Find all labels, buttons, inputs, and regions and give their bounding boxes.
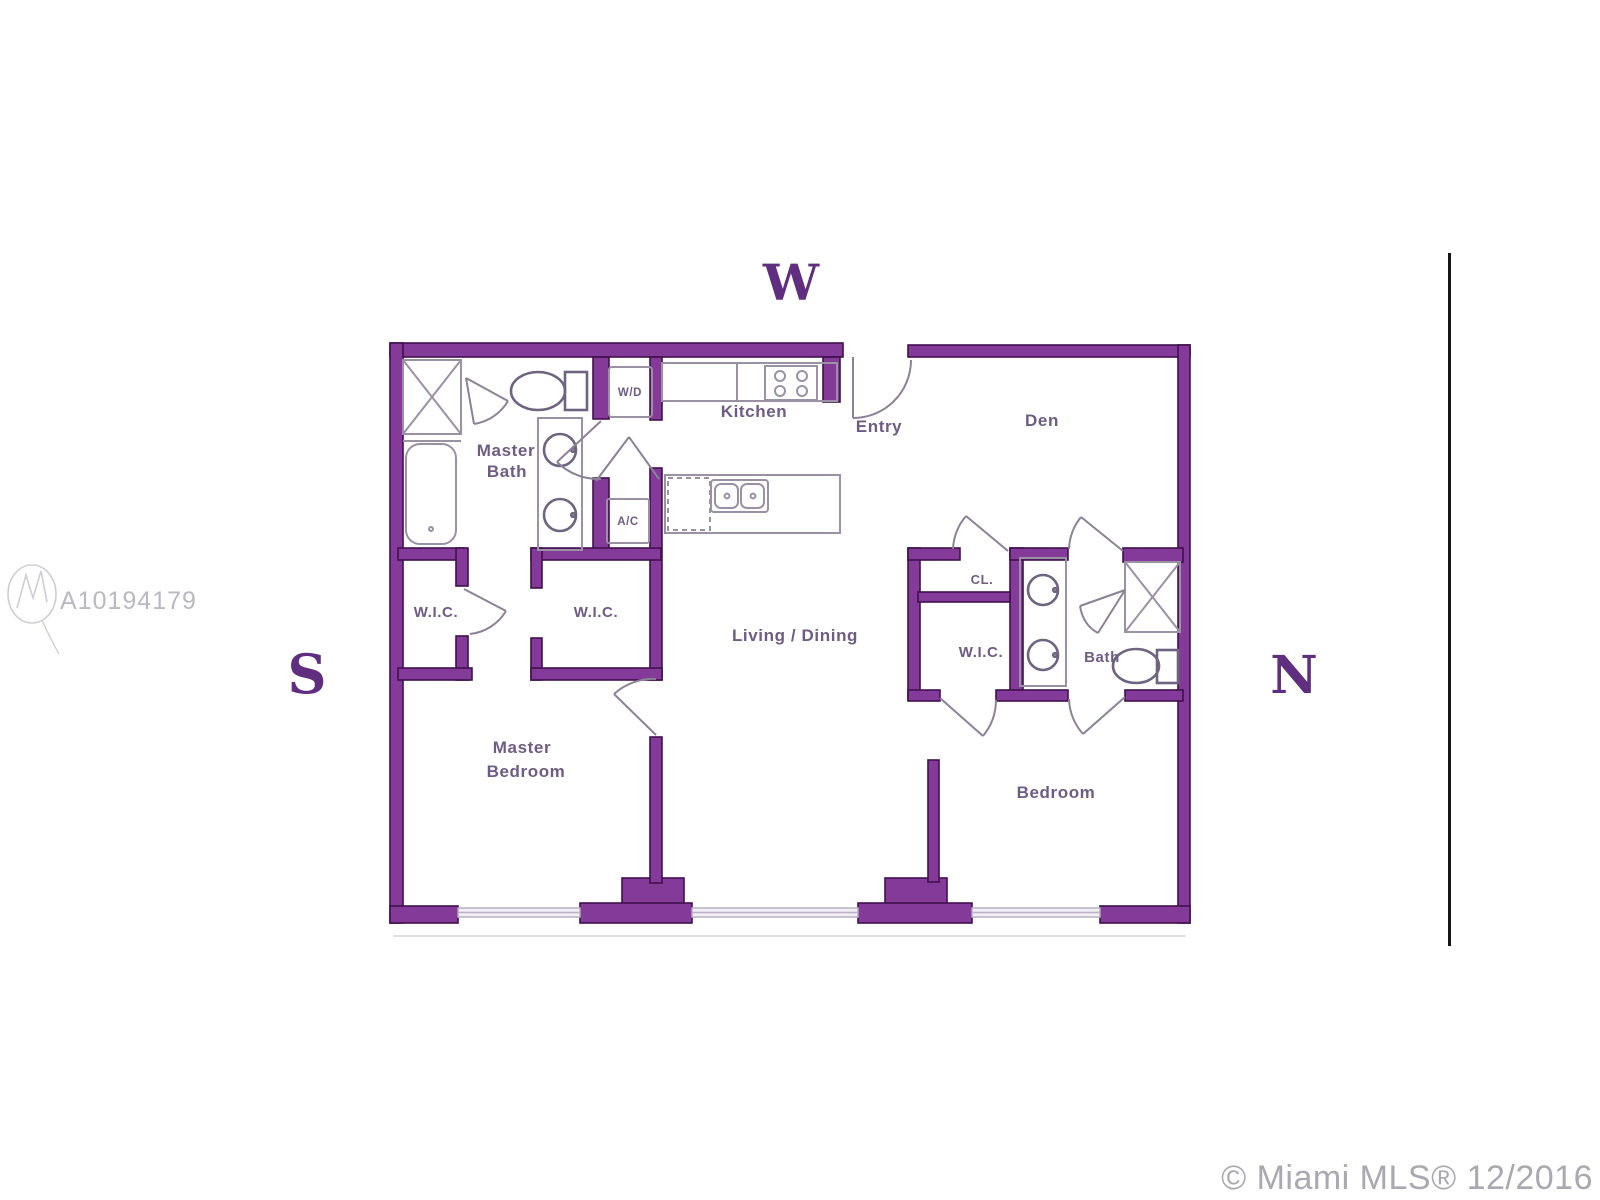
- label-wd: W/D: [618, 387, 642, 399]
- wall-block-top-c: [1123, 548, 1183, 562]
- shower-second: [1125, 562, 1180, 632]
- sink-second-double-icon: [1028, 575, 1058, 670]
- door-cl-closet: [953, 516, 1008, 551]
- label-wic-right: W.I.C.: [959, 644, 1003, 661]
- wall-wicmid-stub-top: [531, 548, 542, 588]
- wall-bottom-right-corner: [1100, 906, 1190, 923]
- kitchen-sink-icon: [711, 480, 768, 512]
- wall-right: [1178, 345, 1190, 923]
- label-den: Den: [1025, 411, 1059, 430]
- label-master-bath-2: Bath: [487, 462, 527, 481]
- wall-bottom-left-corner: [390, 906, 458, 923]
- wall-top-right: [908, 345, 1190, 357]
- vertical-divider-line: [1448, 253, 1451, 946]
- wall-bath-bottom-a: [398, 548, 464, 560]
- label-cl: CL.: [971, 572, 994, 587]
- door-shower-master: [466, 378, 508, 424]
- toilet-master-icon: [511, 372, 587, 410]
- wall-left: [390, 343, 403, 923]
- mls-logo-icon: [8, 565, 59, 654]
- floorplan-page: Master Bath W/D A/C Kitchen Entry Den W.…: [0, 0, 1600, 1200]
- bathtub-icon: [406, 444, 456, 544]
- door-wic-right: [940, 698, 996, 736]
- wall-block-bottom-c: [1125, 690, 1183, 701]
- wall-bath-wd-upper: [593, 357, 609, 419]
- wall-ac-living: [650, 468, 662, 680]
- label-entry: Entry: [856, 417, 902, 436]
- label-master-bedroom-2: Bedroom: [487, 762, 566, 781]
- label-master-bath-1: Master: [477, 441, 535, 460]
- label-wic-left: W.I.C.: [414, 604, 458, 621]
- wall-wicmid-bottom: [531, 668, 662, 680]
- label-bedroom: Bedroom: [1017, 783, 1096, 802]
- label-bath: Bath: [1084, 649, 1120, 666]
- kitchen-counter: [662, 363, 837, 401]
- door-bath-lower: [1069, 697, 1125, 734]
- watermark-id: A10194179: [60, 587, 197, 615]
- door-bath-upper: [1069, 517, 1123, 551]
- wall-masterbedroom-living: [650, 737, 662, 883]
- door-shower-second: [1080, 590, 1125, 633]
- wall-block-left: [908, 548, 920, 700]
- toilet-second-icon: [1113, 649, 1178, 683]
- label-kitchen: Kitchen: [721, 402, 788, 421]
- copyright-text: © Miami MLS® 12/2016: [1221, 1159, 1593, 1197]
- label-master-bedroom-1: Master: [493, 738, 551, 757]
- door-entry: [853, 357, 911, 418]
- wall-top-left: [390, 343, 843, 357]
- watermark: A10194179: [8, 565, 197, 654]
- column-right-base: [858, 903, 972, 923]
- stove-icon: [765, 366, 817, 400]
- label-living-dining: Living / Dining: [732, 626, 858, 645]
- wall-block-middle: [1010, 548, 1023, 700]
- wall-block-top-a: [908, 548, 960, 560]
- compass-south: S: [288, 642, 327, 706]
- compass-north: N: [1270, 645, 1318, 706]
- wall-wicleft-stub-top: [456, 548, 468, 586]
- door-master-bedroom: [614, 679, 656, 735]
- door-master-bath: [557, 421, 601, 479]
- vanity-second: [1020, 558, 1066, 686]
- wall-block-bottom-a: [908, 690, 940, 701]
- column-left-base: [580, 903, 692, 923]
- wall-cl-bottom: [918, 592, 1010, 602]
- wall-block-bottom-b: [996, 690, 1068, 701]
- shower-master: [403, 360, 461, 441]
- floorplan-drawing: Master Bath W/D A/C Kitchen Entry Den W.…: [0, 0, 1600, 1200]
- door-wic-left: [464, 589, 506, 634]
- windows: [393, 908, 1186, 936]
- label-ac: A/C: [617, 516, 639, 528]
- compass-west: W: [762, 253, 820, 312]
- wall-wicleft-bottom: [398, 668, 472, 680]
- wall-bedroom-living: [928, 760, 939, 882]
- label-wic-middle: W.I.C.: [574, 604, 618, 621]
